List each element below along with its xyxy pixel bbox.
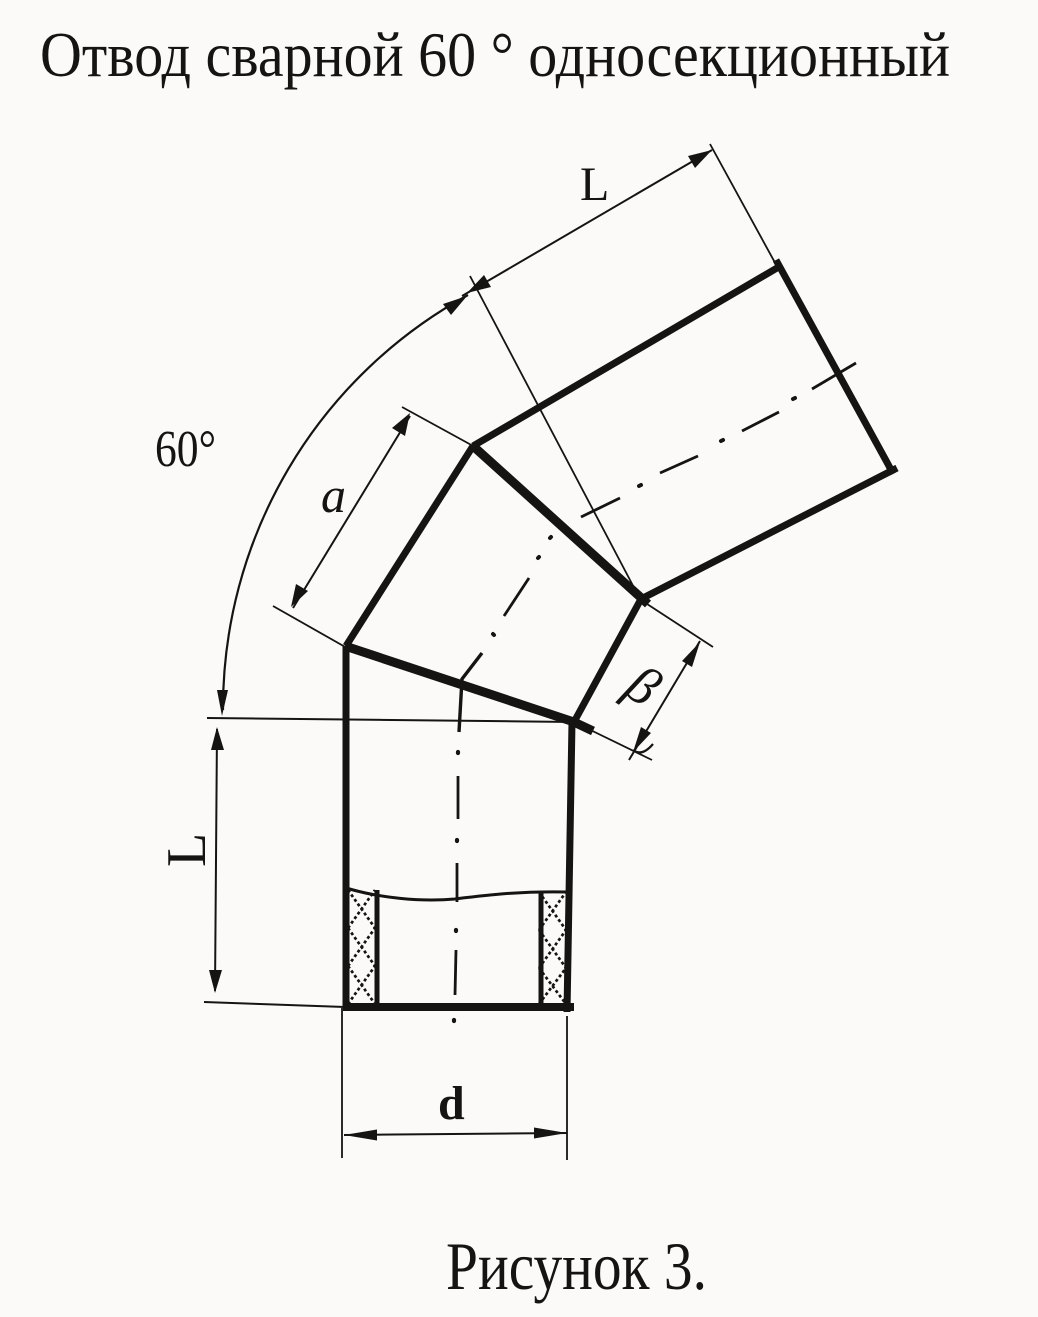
- svg-text:Рисунок 3.: Рисунок 3.: [446, 1228, 707, 1304]
- svg-text:β: β: [615, 652, 671, 718]
- svg-text:a: a: [321, 467, 346, 523]
- svg-text:Отвод сварной 60 ° односекцион: Отвод сварной 60 ° односекционный: [40, 20, 950, 90]
- svg-text:L: L: [156, 833, 218, 867]
- svg-text:60°: 60°: [155, 421, 216, 478]
- svg-text:L: L: [580, 158, 609, 211]
- svg-text:d: d: [438, 1077, 465, 1130]
